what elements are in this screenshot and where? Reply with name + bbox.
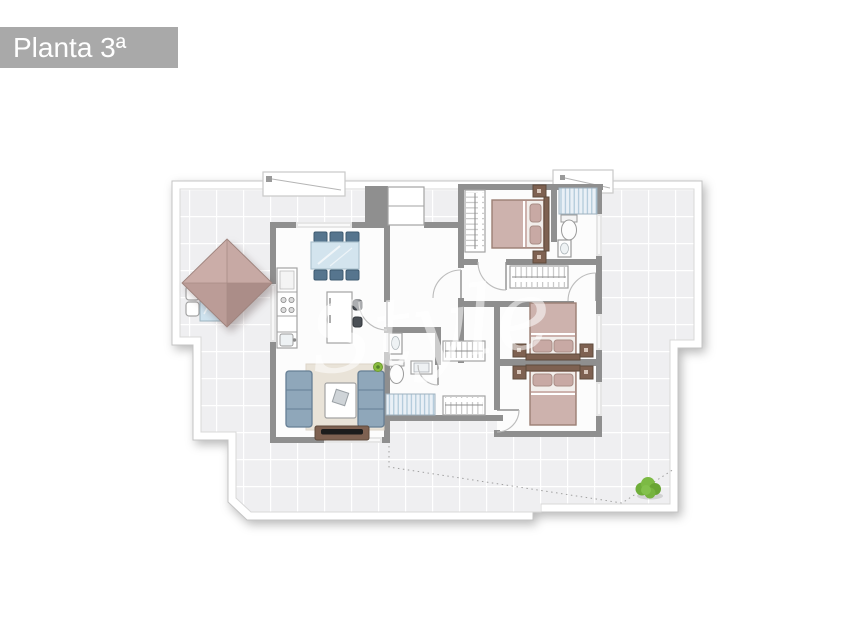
utility-shaft bbox=[388, 187, 424, 225]
dining-chair bbox=[330, 232, 343, 242]
toilet bbox=[561, 215, 577, 240]
dining-chair bbox=[314, 232, 327, 242]
kitchen-appliance-run bbox=[277, 268, 297, 348]
dining-set bbox=[311, 232, 359, 280]
floorplan-page: Style Planta 3ª bbox=[0, 0, 850, 620]
dining-chair bbox=[330, 270, 343, 280]
floorplan-drawing: Style bbox=[0, 0, 850, 620]
double-bed bbox=[526, 365, 580, 425]
shower bbox=[559, 188, 597, 214]
tv-stand bbox=[315, 426, 369, 440]
sofa bbox=[286, 371, 312, 427]
headboard bbox=[544, 197, 549, 251]
double-bed bbox=[492, 197, 549, 251]
wardrobe bbox=[465, 190, 485, 252]
tv bbox=[321, 429, 363, 435]
dining-chair bbox=[346, 270, 359, 280]
floor-label: Planta 3ª bbox=[13, 32, 126, 63]
outdoor-chair bbox=[186, 302, 199, 316]
washbasin bbox=[558, 240, 571, 257]
dining-chair bbox=[346, 232, 359, 242]
floor-label-banner: Planta 3ª bbox=[0, 27, 178, 68]
awning-symbol bbox=[263, 172, 345, 196]
wardrobe bbox=[443, 396, 485, 415]
fridge bbox=[280, 271, 294, 289]
dining-chair bbox=[314, 270, 327, 280]
shower bbox=[386, 394, 435, 415]
dining-table bbox=[311, 242, 359, 269]
